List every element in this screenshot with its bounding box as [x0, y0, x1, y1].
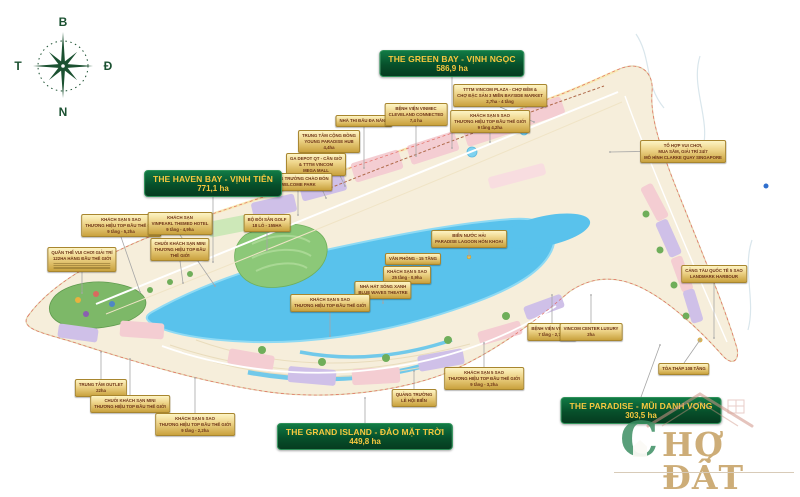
callout-line: TÒA THÁP 108 TẦNG	[662, 366, 705, 372]
callout-line: CHUỖI KHÁCH SẠN MINI	[94, 398, 166, 404]
callout-khach-san-5-sao-42: KHÁCH SẠN 5 SAOTHƯƠNG HIỆU TOP ĐẦU THẾ G…	[450, 110, 530, 133]
callout-quan-the-vui-choi-122ha: QUẦN THỂ VUI CHƠI GIẢI TRÍ122HA HÀNG ĐẦU…	[47, 247, 116, 272]
callout-bo-doi-san-golf: BỘ ĐÔI SÂN GOLF18 LỖ - 155HA	[244, 214, 291, 232]
callout-line: LANDMARK HARBOUR	[685, 274, 743, 280]
callout-line: VINCOM CENTER LUXURY	[564, 326, 619, 332]
callout-line: 18 LỖ - 155HA	[248, 223, 287, 229]
callout-line: QUẢNG TRƯỜNG	[396, 392, 433, 398]
callout-van-phong-15-tang: VĂN PHÒNG - 15 TẦNG	[385, 253, 441, 265]
callout-quang-truong-le-hoi-bien: QUẢNG TRƯỜNGLỄ HỘI BIỂN	[392, 389, 437, 407]
lagoon-islet	[467, 255, 471, 259]
callout-tttm-vincom-plaza: TTTM VINCOM PLAZA - CHỢ ĐÊM &CHỢ ĐẶC SẢN…	[453, 84, 547, 107]
callout-chuoi-khach-san-mini-2: CHUỖI KHÁCH SẠN MINITHƯƠNG HIỆU TOP ĐẦU …	[90, 395, 170, 413]
masterplan-canvas: NHÀ THI ĐẤU ĐA NĂNGBỆNH VIỆN VINMECCLEVE…	[0, 0, 800, 491]
callout-line: LỄ HỘI BIỂN	[396, 398, 433, 404]
callout-line: THẾ GIỚI	[154, 253, 205, 259]
callout-line: NHÀ THI ĐẤU ĐA NĂNG	[339, 118, 388, 124]
fineprint-line	[53, 265, 110, 266]
callout-line: THƯƠNG HIỆU TOP ĐẦU THẾ GIỚI	[94, 404, 166, 410]
callout-line: QUẦN THỂ VUI CHƠI GIẢI TRÍ	[51, 250, 112, 256]
compass-east-label: Đ	[104, 59, 113, 73]
zone-area: 771,1 ha	[153, 184, 273, 193]
callout-line: CHỢ ĐẶC SẢN 3 MIỀN BAYSIDE MARKET	[457, 93, 543, 99]
callout-line: NHÀ HÁT SÓNG XANH	[358, 284, 407, 290]
callout-line: 9 tầng - 5,2ha	[85, 229, 157, 235]
callout-line: THƯƠNG HIỆU TOP ĐẦU THẾ GIỚI	[294, 303, 366, 309]
callout-line: TRUNG TÂM CỘNG ĐỒNG	[302, 133, 356, 139]
compass-south-label: N	[59, 105, 68, 119]
callout-line: GA DEPOT QT - CẦN GIỜ	[290, 156, 342, 162]
compass-west-label: T	[14, 59, 22, 73]
callout-line: BỘ ĐÔI SÂN GOLF	[248, 217, 287, 223]
callout-line: BỆNH VIỆN VINMEC	[389, 106, 444, 112]
callout-khach-san-vinpearl: KHÁCH SẠNVINPEARL THEMED HOTEL9 tầng - 4…	[148, 212, 213, 235]
callout-trung-tam-outlet: TRUNG TÂM OUTLET22ha	[75, 379, 127, 397]
compass-rose: B N T Đ	[10, 2, 120, 127]
callout-line: VĂN PHÒNG - 15 TẦNG	[389, 256, 437, 262]
callout-line: 2,7ha - 4 tầng	[457, 99, 543, 105]
callout-line: THƯƠNG HIỆU TOP ĐẦU THẾ GIỚI	[85, 223, 157, 229]
callout-line: CLEVELAND CONNECTED	[389, 112, 444, 118]
callout-line: THƯƠNG HIỆU TOP ĐẦU	[154, 247, 205, 253]
callout-line: THƯƠNG HIỆU TOP ĐẦU THẾ GIỚI	[454, 119, 526, 125]
callout-line: TRUNG TÂM OUTLET	[79, 382, 123, 388]
callout-line: TTTM VINCOM PLAZA - CHỢ ĐÊM &	[457, 87, 543, 93]
callout-line: YOUNG PARADISE HUB	[302, 139, 356, 145]
callout-line: 25 tầng - 0,9ha	[387, 275, 427, 281]
callout-line: 9 tầng - 4,9ha	[152, 227, 209, 233]
zone-label-the-green-bay: THE GREEN BAY - VỊNH NGỌC586,9 ha	[379, 50, 524, 77]
fineprint-line	[53, 263, 110, 264]
zone-area: 586,9 ha	[388, 64, 515, 73]
zone-name: THE GRAND ISLAND - ĐẢO MẶT TRỜI	[286, 427, 444, 437]
zone-name: THE GREEN BAY - VỊNH NGỌC	[388, 54, 515, 64]
zone-label-the-grand-island: THE GRAND ISLAND - ĐẢO MẶT TRỜI449,8 ha	[277, 423, 453, 450]
callout-line: 122HA HÀNG ĐẦU THẾ GIỚI	[51, 256, 112, 262]
callout-line: 22ha	[79, 388, 123, 394]
callout-cang-tau-quoc-te: CẢNG TÀU QUỐC TẾ 5 SAOLANDMARK HARBOUR	[681, 265, 747, 283]
callout-line: MÔ HÌNH CLARKE QUAY SINGAPORE	[644, 155, 722, 161]
zone-area: 449,8 ha	[286, 437, 444, 446]
callout-line: 9 tầng - 3,2ha	[448, 382, 520, 388]
callout-bien-nuoc-hai-lagoon: BIỂN NƯỚC HẢIPARADISE LAGOON HÒN KHOAI	[431, 230, 507, 248]
callout-line: PARADISE LAGOON HÒN KHOAI	[435, 239, 503, 245]
watermark-text: HỢ ĐẤT	[662, 428, 798, 494]
zone-name: THE HAVEN BAY - VỊNH TIÊN	[153, 174, 273, 184]
callout-benh-vien-vinmec-cleveland: BỆNH VIỆN VINMECCLEVELAND CONNECTED7,4 h…	[385, 103, 448, 126]
zone-label-the-haven-bay: THE HAVEN BAY - VỊNH TIÊN771,1 ha	[144, 170, 282, 197]
callout-khach-san-5-sao-22: KHÁCH SẠN 5 SAOTHƯƠNG HIỆU TOP ĐẦU THẾ G…	[155, 413, 235, 436]
callout-trung-tam-cong-dong-hub: TRUNG TÂM CỘNG ĐỒNGYOUNG PARADISE HUB4,4…	[298, 130, 360, 153]
callout-line: 9 tầng 4,2ha	[454, 125, 526, 131]
callout-khach-san-5-sao-mid: KHÁCH SẠN 5 SAOTHƯƠNG HIỆU TOP ĐẦU THẾ G…	[290, 294, 370, 312]
buoy-dot	[764, 184, 769, 189]
watermark-underline	[614, 472, 794, 473]
callout-line: 4,4ha	[302, 145, 356, 151]
callout-line: CẢNG TÀU QUỐC TẾ 5 SAO	[685, 268, 743, 274]
callout-line: KHÁCH SẠN 5 SAO	[387, 269, 427, 275]
callout-line: CHUỖI KHÁCH SẠN MINI	[154, 241, 205, 247]
callout-line: THƯƠNG HIỆU TOP ĐẦU THẾ GIỚI	[159, 422, 231, 428]
callout-to-hop-clarke-quay: TỔ HỢP VUI CHƠI,MUA SẮM, GIẢI TRÍ 24/7MÔ…	[640, 140, 726, 163]
callout-line: 7,4 ha	[389, 118, 444, 124]
callout-line: 9 tầng - 2,2ha	[159, 428, 231, 434]
callout-toa-thap-108-tang: TÒA THÁP 108 TẦNG	[658, 363, 709, 375]
callout-line: THƯƠNG HIỆU TOP ĐẦU THẾ GIỚI	[448, 376, 520, 382]
chodat-watermark: C HỢ ĐẤT	[610, 386, 798, 482]
fineprint-line	[53, 267, 110, 268]
callout-chuoi-khach-san-mini-1: CHUỖI KHÁCH SẠN MINITHƯƠNG HIỆU TOP ĐẦUT…	[150, 238, 209, 261]
callout-khach-san-5-sao-32: KHÁCH SẠN 5 SAOTHƯƠNG HIỆU TOP ĐẦU THẾ G…	[444, 367, 524, 390]
compass-north-label: B	[59, 15, 68, 29]
callout-line: 2ha	[564, 332, 619, 338]
callout-line: VINPEARL THEMED HOTEL	[152, 221, 209, 227]
callout-vincom-center-luxury: VINCOM CENTER LUXURY2ha	[560, 323, 623, 341]
